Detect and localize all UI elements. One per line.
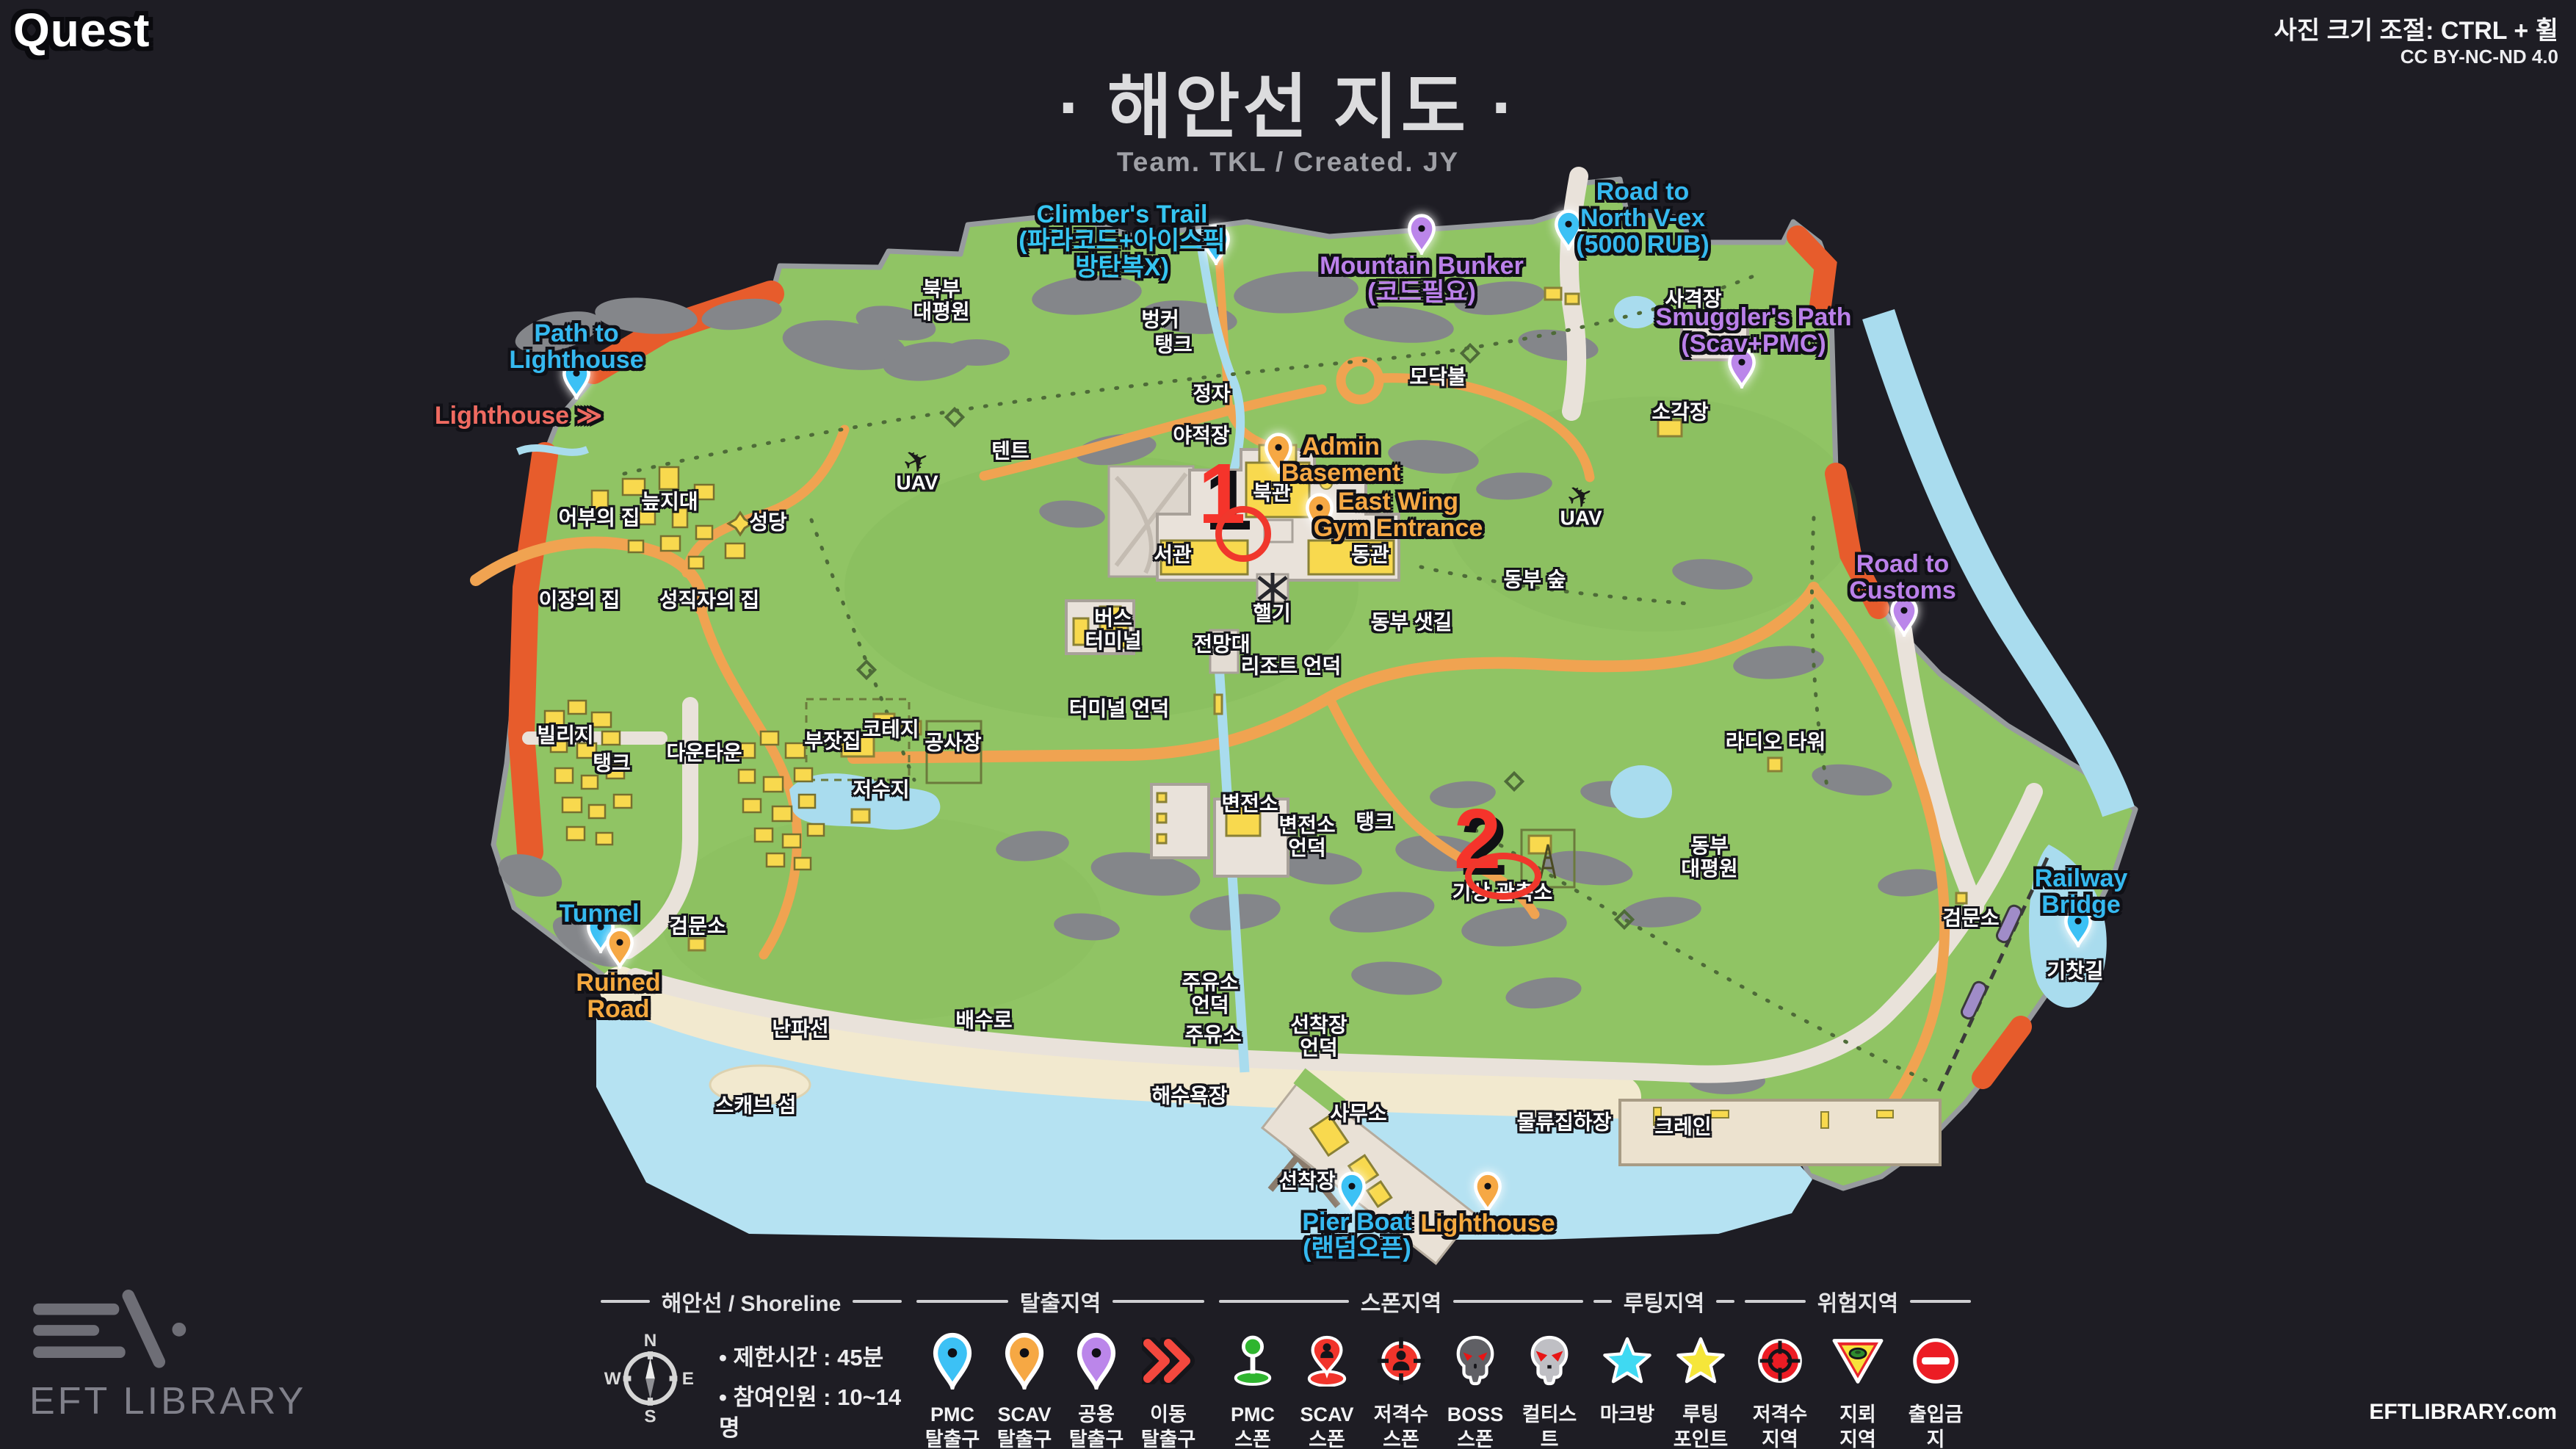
quest-target-circle-2 bbox=[1465, 853, 1541, 900]
path-to-lighthouse-label: Path to Lighthouse bbox=[509, 320, 643, 373]
legend-item-boss-spawn: BOSS 스폰 bbox=[1441, 1329, 1509, 1449]
legend-item-cultist-spawn: 컬티스트 스폰 bbox=[1516, 1329, 1583, 1449]
map-place-label: 동부 숲 bbox=[1503, 569, 1566, 592]
map-place-label: 핼기 bbox=[1253, 603, 1291, 626]
map-title: · 해안선 지도 · bbox=[0, 50, 2576, 152]
pin-orange-icon bbox=[1003, 1329, 1046, 1392]
map-place-label: 해수욕장 bbox=[1151, 1085, 1227, 1108]
mountain-bunker-label: Mountain Bunker (코드필요) bbox=[1320, 253, 1524, 306]
map-place-label: 동부 대평원 bbox=[1681, 835, 1737, 881]
legend-item-move-exit: 이동 탈출구 bbox=[1132, 1329, 1204, 1449]
legend-item-pmc-spawn: PMC 스폰 bbox=[1219, 1329, 1287, 1449]
legend-map-name: 해안선 / Shoreline bbox=[662, 1285, 842, 1318]
ruined-road-label: Ruined Road bbox=[576, 969, 660, 1022]
legend-item-mine-zone: 지뢰 지역 bbox=[1823, 1329, 1893, 1449]
map-place-label: 다운타운 bbox=[666, 742, 742, 765]
legend-danger-zones: 위험지역 저격수 지역 지뢰 지역 출입금지 구역 bbox=[1745, 1285, 1971, 1449]
pin-blue-icon bbox=[931, 1329, 974, 1392]
brand-name: EFT LIBRARY bbox=[29, 1379, 306, 1423]
map-place-label: 사무소 bbox=[1330, 1103, 1386, 1126]
compass-e: E bbox=[682, 1369, 694, 1389]
map-place-label: 소각장 bbox=[1651, 402, 1708, 424]
legend-item-marked-room: 마크방 bbox=[1593, 1329, 1661, 1449]
move-exit-icon bbox=[1142, 1329, 1195, 1392]
map-place-label: 북부 대평원 bbox=[913, 278, 969, 324]
scav-spawn-icon bbox=[1304, 1329, 1350, 1392]
page: ✈ ✈ 북부 대평원벙커탱크정자야적장모닥불텐트UAVUAV사격장소각장늪지대어… bbox=[0, 0, 2576, 1449]
legend-section-title: 탈출지역 bbox=[1020, 1285, 1101, 1318]
boss-spawn-icon bbox=[1452, 1329, 1498, 1392]
compass-w: W bbox=[604, 1369, 621, 1389]
smugglers-path-label: Smuggler's Path (Scav+PMC) bbox=[1656, 304, 1852, 357]
sniper-spawn-icon bbox=[1376, 1329, 1426, 1392]
raid-time-limit: • 제한시간 : 45분 bbox=[719, 1343, 902, 1373]
map-place-label: 텐트 bbox=[991, 441, 1030, 463]
quest-target-circle-1 bbox=[1215, 506, 1271, 562]
map-place-label: 저수지 bbox=[853, 779, 909, 802]
map-place-label: 어부의 집 bbox=[559, 507, 640, 530]
legend-loot-zones: 루팅지역 마크방 루팅 포인트 bbox=[1593, 1285, 1734, 1449]
legend-spawn-zones: 스폰지역 PMC 스폰 SCAV 스폰 저격수 스폰 BOSS 스폰 bbox=[1219, 1285, 1583, 1449]
ruined-road-pin[interactable] bbox=[604, 928, 635, 972]
map-place-label: 물류집하장 bbox=[1517, 1112, 1612, 1135]
loot-point-star-icon bbox=[1675, 1329, 1726, 1392]
railway-bridge-label: Railway Bridge bbox=[2035, 865, 2128, 918]
page-title: Quest bbox=[13, 3, 150, 57]
license-text: CC BY-NC-ND 4.0 bbox=[2400, 46, 2558, 68]
legend-item-sniper-spawn: 저격수 스폰 bbox=[1367, 1329, 1435, 1449]
map-place-label: 라디오 타워 bbox=[1726, 731, 1826, 754]
map-place-label: 정자 bbox=[1193, 383, 1231, 406]
legend-item-loot-point: 루팅 포인트 bbox=[1667, 1329, 1734, 1449]
lighthouse-south-label: Lighthouse bbox=[1420, 1210, 1555, 1237]
map-place-label: 빌리지 bbox=[537, 725, 593, 748]
no-entry-icon bbox=[1911, 1329, 1961, 1392]
legend-item-shared-exit: 공용 탈출구 bbox=[1060, 1329, 1132, 1449]
map-place-label: 탱크 bbox=[593, 753, 631, 776]
legend-section-title: 스폰지역 bbox=[1361, 1285, 1441, 1318]
map-place-label: 늪지대 bbox=[641, 491, 698, 514]
mine-zone-icon bbox=[1831, 1329, 1885, 1392]
legend-item-no-entry-zone: 출입금지 구역 bbox=[1900, 1329, 1971, 1449]
map-place-label: 모닥불 bbox=[1409, 366, 1466, 389]
map-place-label: 주유소 언덕 bbox=[1182, 972, 1238, 1017]
map-place-label: 검문소 bbox=[669, 916, 726, 939]
map-place-label: 스캐브 섬 bbox=[715, 1095, 797, 1118]
pier-boat-label: Pier Boat (랜덤오픈) bbox=[1302, 1209, 1411, 1262]
map-place-label: 난파선 bbox=[772, 1019, 828, 1041]
map-place-label: 성직자의 집 bbox=[659, 590, 760, 613]
map-place-label: 탱크 bbox=[1154, 334, 1193, 357]
map-place-label: 야적장 bbox=[1173, 425, 1229, 448]
compass-s: S bbox=[644, 1406, 656, 1426]
compass-n: N bbox=[644, 1331, 657, 1351]
legend-escape-zones: 탈출지역 PMC 탈출구 SCAV 탈출구 공용 탈출구 bbox=[916, 1285, 1204, 1449]
map-place-label: 주유소 bbox=[1184, 1025, 1241, 1047]
pin-purple-icon bbox=[1075, 1329, 1118, 1392]
zoom-hint: 사진 크기 조절: CTRL + 휠 bbox=[2274, 10, 2558, 46]
map-place-label: 선착장 언덕 bbox=[1290, 1014, 1347, 1060]
raid-player-count: • 참여인원 : 10~14명 bbox=[719, 1382, 902, 1444]
legend-item-sniper-zone: 저격수 지역 bbox=[1745, 1329, 1815, 1449]
legend-map-info: 해안선 / Shoreline N S W E • 제한시간 : 45분 • 참… bbox=[601, 1285, 902, 1444]
map-place-label: UAV bbox=[896, 472, 938, 495]
map-place-label: 검문소 bbox=[1942, 908, 1999, 931]
map-place-label: 이장의 집 bbox=[539, 590, 621, 613]
map-place-label: 공사장 bbox=[925, 732, 981, 755]
admin-basement-label: Admin Basement bbox=[1281, 433, 1401, 486]
legend-section-title: 루팅지역 bbox=[1624, 1285, 1704, 1318]
divider bbox=[601, 1300, 650, 1303]
legend-item-scav-spawn: SCAV 스폰 bbox=[1293, 1329, 1361, 1449]
map-place-label: 코테지 bbox=[862, 719, 919, 742]
road-to-customs-label: Road to Customs bbox=[1849, 551, 1955, 604]
compass-icon: N S W E bbox=[601, 1323, 700, 1434]
climbers-trail-label: Climber's Trail (파라코드+아이스픽 방탄복X) bbox=[1019, 201, 1225, 281]
map-place-label: 성당 bbox=[749, 512, 787, 535]
map-place-label: 리조트 언덕 bbox=[1241, 656, 1342, 679]
map-place-label: 터미널 언덕 bbox=[1069, 698, 1170, 721]
cultist-spawn-icon bbox=[1527, 1329, 1572, 1392]
map-place-label: 벙커 bbox=[1141, 309, 1179, 332]
map-place-label: 배수로 bbox=[955, 1010, 1012, 1033]
marked-room-star-icon bbox=[1602, 1329, 1653, 1392]
map-place-label: 전망대 bbox=[1193, 634, 1250, 657]
pmc-spawn-icon bbox=[1230, 1329, 1276, 1392]
map-place-label: UAV bbox=[1560, 507, 1602, 530]
lighthouse-west-exit-label: Lighthouse ≫ bbox=[435, 402, 602, 429]
map-place-label: 서관 bbox=[1154, 544, 1192, 567]
map-place-label: 크레인 bbox=[1654, 1116, 1711, 1139]
map-credits: Team. TKL / Created. JY bbox=[0, 147, 2576, 178]
map-place-label: 동관 bbox=[1351, 544, 1389, 567]
map-place-label: 변전소 bbox=[1221, 793, 1278, 816]
map-place-label: 기찻길 bbox=[2047, 961, 2103, 983]
legend-item-scav-exit: SCAV 탈출구 bbox=[988, 1329, 1060, 1449]
legend-section-title: 위험지역 bbox=[1817, 1285, 1898, 1318]
map-place-label: 부잣집 bbox=[804, 731, 861, 754]
east-wing-gym-entrance-label: East Wing Gym Entrance bbox=[1314, 488, 1483, 541]
site-url[interactable]: EFTLIBRARY.com bbox=[2369, 1400, 2557, 1425]
road-to-north-vex-label: Road to North V-ex (5000 RUB) bbox=[1576, 178, 1709, 258]
tunnel-label: Tunnel bbox=[560, 900, 640, 927]
map-place-label: 변전소 언덕 bbox=[1278, 814, 1335, 860]
sniper-zone-icon bbox=[1755, 1329, 1805, 1392]
eft-library-logo bbox=[29, 1290, 198, 1374]
map-place-label: 동부 샛길 bbox=[1371, 612, 1452, 635]
legend-map-name-header: 해안선 / Shoreline bbox=[601, 1285, 902, 1318]
map-place-label: 버스 터미널 bbox=[1085, 607, 1141, 653]
map-place-label: 선착장 bbox=[1278, 1171, 1335, 1193]
divider bbox=[853, 1300, 902, 1303]
legend-item-pmc-exit: PMC 탈출구 bbox=[916, 1329, 988, 1449]
map-overlays: 북부 대평원벙커탱크정자야적장모닥불텐트UAVUAV사격장소각장늪지대어부의 집… bbox=[0, 0, 2576, 1449]
map-place-label: 탱크 bbox=[1356, 812, 1394, 834]
